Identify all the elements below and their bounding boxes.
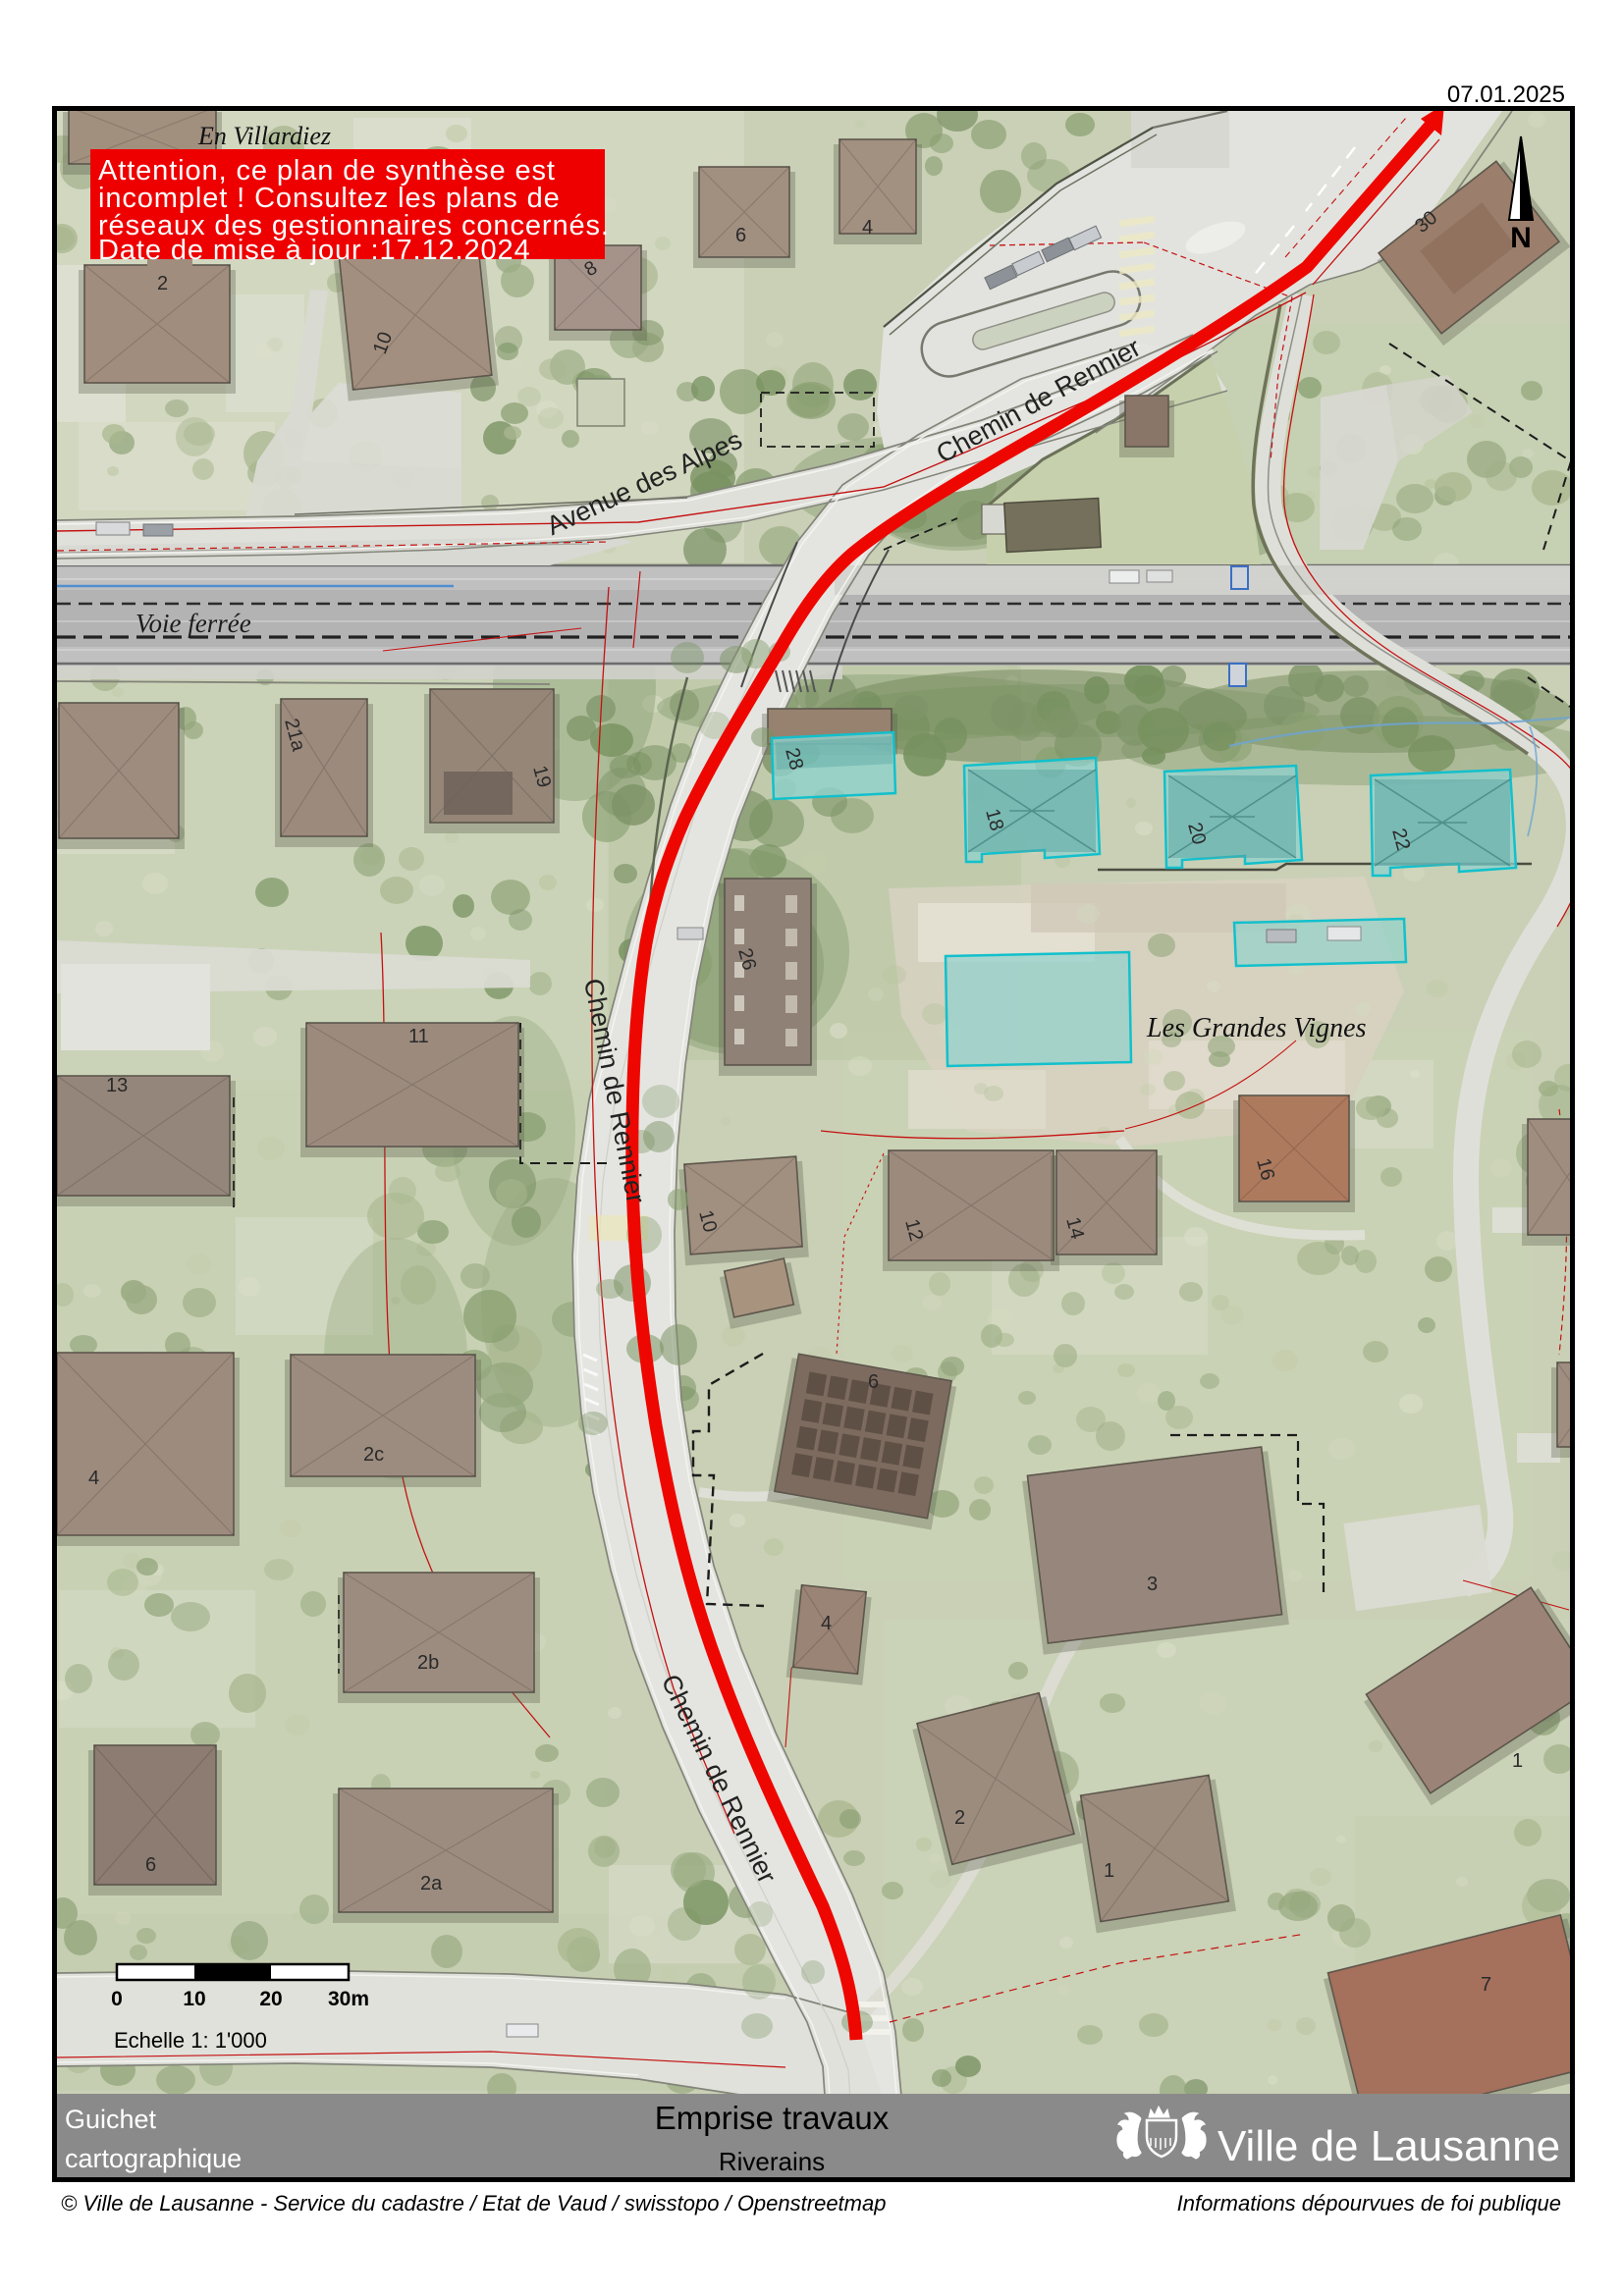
svg-text:En Villardiez: En Villardiez [197, 122, 331, 150]
svg-text:Ville de Lausanne: Ville de Lausanne [1217, 2122, 1560, 2170]
svg-text:1: 1 [1104, 1860, 1114, 1882]
svg-text:Les Grandes Vignes: Les Grandes Vignes [1146, 1013, 1367, 1043]
svg-text:2c: 2c [363, 1444, 384, 1466]
svg-text:3: 3 [1147, 1574, 1158, 1595]
svg-text:N: N [1510, 222, 1532, 254]
svg-text:6: 6 [145, 1854, 156, 1876]
svg-text:07.01.2025: 07.01.2025 [1447, 81, 1565, 108]
svg-text:2a: 2a [420, 1873, 443, 1895]
svg-text:6: 6 [868, 1371, 879, 1393]
svg-text:6: 6 [735, 225, 746, 246]
svg-text:0: 0 [111, 1988, 123, 2010]
svg-text:7: 7 [1481, 1974, 1491, 1996]
svg-text:2: 2 [157, 273, 168, 294]
svg-text:Emprise travaux: Emprise travaux [655, 2100, 890, 2136]
svg-text:Guichet: Guichet [65, 2105, 157, 2134]
svg-text:2b: 2b [417, 1652, 439, 1674]
svg-text:11: 11 [408, 1026, 429, 1047]
svg-text:Voie ferrée: Voie ferrée [135, 609, 251, 638]
svg-text:2: 2 [954, 1807, 965, 1829]
svg-text:4: 4 [862, 217, 873, 239]
svg-text:Riverains: Riverains [719, 2147, 825, 2176]
svg-text:1: 1 [1512, 1750, 1523, 1772]
svg-text:4: 4 [821, 1613, 832, 1634]
svg-text:10: 10 [183, 1988, 205, 2010]
svg-text:30m: 30m [328, 1988, 369, 2010]
svg-text:Date de mise à jour :17.12.202: Date de mise à jour :17.12.2024 [98, 235, 531, 266]
svg-text:20: 20 [259, 1988, 282, 2010]
svg-text:Informations dépourvues de foi: Informations dépourvues de foi publique [1177, 2191, 1561, 2216]
svg-text:cartographique: cartographique [65, 2144, 242, 2173]
svg-text:© Ville de Lausanne - Service: © Ville de Lausanne - Service du cadastr… [61, 2191, 886, 2216]
svg-text:4: 4 [88, 1468, 99, 1489]
svg-text:13: 13 [106, 1075, 128, 1096]
svg-text:Echelle 1: 1'000: Echelle 1: 1'000 [114, 2028, 267, 2053]
